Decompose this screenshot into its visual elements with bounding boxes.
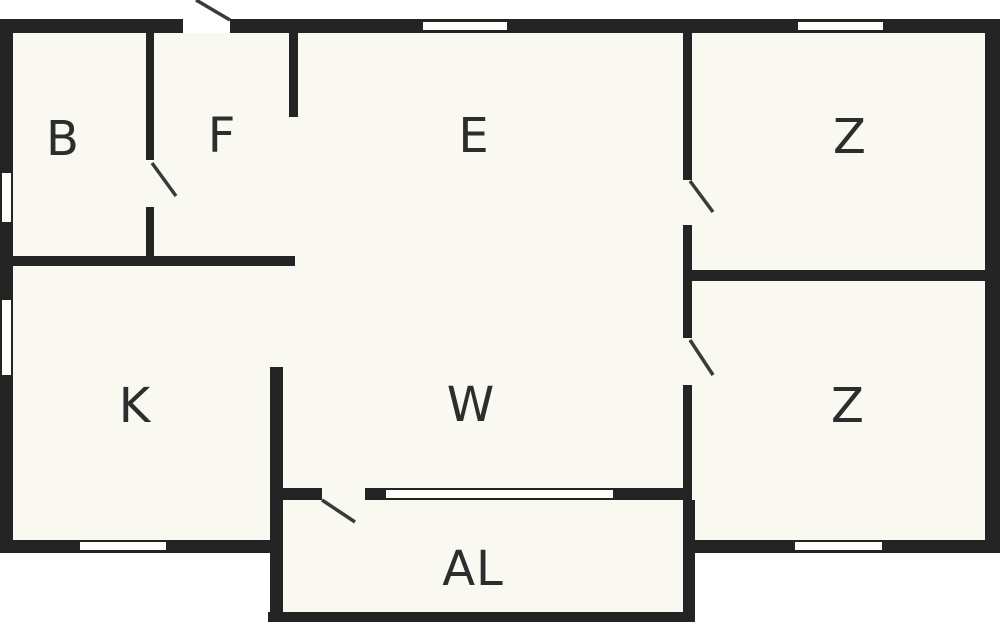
wall-top-left-of-entrance [0, 19, 183, 33]
wall-w-bottom-left-of-door [270, 488, 322, 500]
room-label-al: AL [442, 541, 504, 597]
wall-w-z-lower [683, 385, 692, 500]
room-label-z-bottom: Z [831, 378, 865, 434]
window-symbol-e-top [423, 22, 507, 30]
room-label-k: K [119, 378, 151, 434]
floor-plan: B F E Z K W Z AL [0, 0, 1000, 622]
room-label-f: F [208, 108, 237, 164]
window-symbol-w-terrace [386, 490, 613, 498]
window-symbol-z-bottom [795, 542, 882, 550]
room-label-z-top: Z [833, 109, 867, 165]
wall-b-f-upper [146, 33, 154, 160]
window-symbol-k-left [2, 300, 11, 375]
room-label-w: W [447, 377, 495, 433]
window-symbol-z-top [798, 22, 883, 30]
room-label-e: E [458, 108, 489, 164]
wall-left-outer [0, 19, 13, 553]
window-symbol-b-left [2, 173, 11, 222]
wall-b-k-divider [0, 256, 295, 266]
door-swing-line-entrance [196, 0, 230, 20]
wall-al-right [683, 500, 695, 622]
wall-al-bottom [268, 612, 695, 622]
wall-f-e-stub [289, 33, 298, 117]
wall-right-outer [985, 19, 1000, 553]
window-symbol-k-bottom [80, 542, 166, 550]
wall-e-z-upper [683, 33, 692, 180]
room-label-b: B [46, 111, 80, 167]
wall-z-z-divider [692, 270, 1000, 281]
wall-top-right-of-entrance [230, 19, 1000, 33]
wall-e-z-middle [683, 225, 692, 338]
